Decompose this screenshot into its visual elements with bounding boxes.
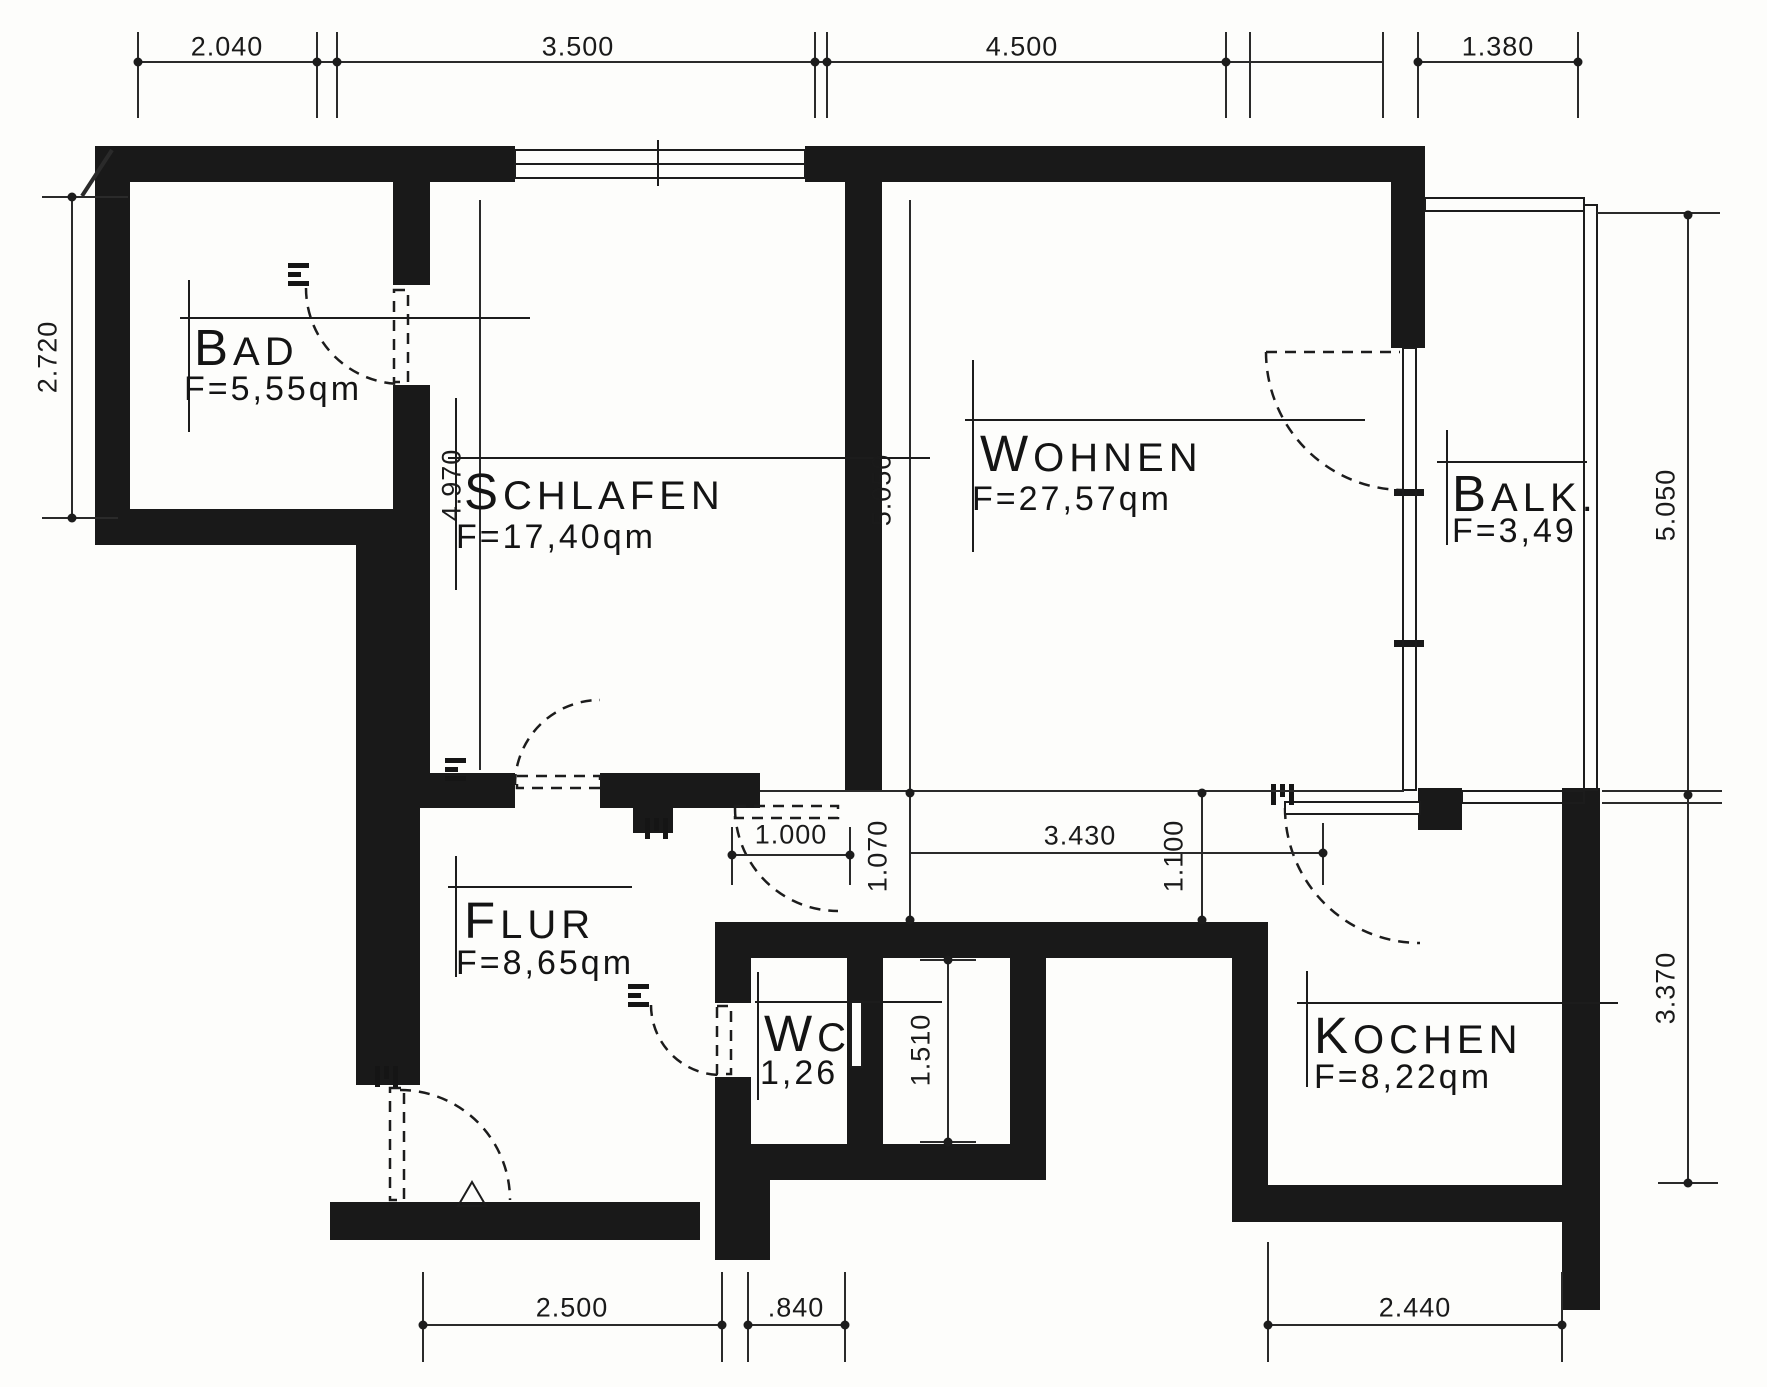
wall-bad-bottom: [95, 509, 395, 545]
wall-schlafen-bottom-left: [420, 773, 515, 808]
room-label-wc-area: 1,26: [760, 1056, 838, 1090]
wall-wc-bottom: [715, 1144, 1046, 1180]
dim-schlafen-height: 4.970: [439, 449, 466, 522]
dim-corridor-left: 1.070: [865, 820, 892, 893]
room-label-kochen-name: KOCHEN: [1314, 1010, 1522, 1061]
room-label-flur-name: FLUR: [464, 895, 595, 946]
flur-door-jamb-icon: [645, 818, 668, 839]
wall-flur-left-thick: [356, 509, 430, 790]
wall-flur-left-lower: [356, 790, 420, 1085]
floorplan-drawing: [0, 0, 1767, 1387]
room-label-wohnen-name: WOHNEN: [980, 428, 1203, 479]
entrance-door-arc: [400, 1090, 510, 1200]
entrance-door-leaf: [390, 1088, 404, 1200]
walls-group: [95, 146, 1600, 1310]
room-label-kochen-area: F=8,22qm: [1314, 1060, 1492, 1094]
wall-balcony-column: [1391, 182, 1425, 348]
wall-shaft-right: [1010, 958, 1046, 1180]
wall-kochen-top-stub: [1418, 788, 1462, 830]
dim-right-2: 3.370: [1653, 952, 1680, 1025]
kochen-door-arc: [1285, 808, 1420, 943]
balcony-railing-top: [1425, 198, 1584, 211]
wall-below-wc: [715, 1180, 770, 1260]
kochen-door-jamb-icon: [1271, 784, 1294, 805]
schlafen-door-jamb-icon: [445, 758, 466, 781]
wall-left-outer: [95, 146, 130, 545]
dim-corridor-width: 3.430: [1044, 823, 1117, 850]
wall-bottom-entrance: [330, 1202, 700, 1240]
wall-top-left: [95, 146, 515, 182]
kochen-door-leaf: [1285, 802, 1420, 814]
room-label-schlafen-area: F=17,40qm: [456, 520, 656, 554]
wall-bad-divider-lower: [393, 385, 430, 509]
bad-door-leaf: [394, 290, 408, 382]
dim-top-2: 3.500: [542, 34, 615, 61]
floor-plan: BAD F=5,55qm SCHLAFEN F=17,40qm WOHNEN F…: [0, 0, 1767, 1387]
door-jamb-symbols-group: [288, 263, 1294, 1087]
schlafen-door-arc: [515, 700, 600, 785]
wall-kochen-left: [1232, 922, 1268, 1196]
room-label-balkon-area: F=3,49: [1452, 514, 1577, 548]
dim-shaft: 1.510: [908, 1014, 935, 1087]
dim-top-4: 1.380: [1462, 34, 1535, 61]
dim-bottom-2: .840: [768, 1295, 825, 1322]
wc-shaft: [851, 1001, 862, 1067]
dim-right-1: 5.050: [1653, 469, 1680, 542]
wall-corridor-south: [715, 922, 1268, 958]
dim-top-3: 4.500: [986, 34, 1059, 61]
room-label-flur-area: F=8,65qm: [456, 946, 634, 980]
room-label-schlafen-name: SCHLAFEN: [464, 466, 725, 517]
room-label-wc-name: WC: [764, 1008, 851, 1059]
wall-kochen-right: [1562, 788, 1600, 1310]
balcony-glazing: [1403, 348, 1416, 790]
wall-schlafen-bottom-right: [600, 773, 760, 808]
wc-door-arc: [651, 1005, 721, 1075]
wall-wc-left-upper: [715, 958, 751, 1003]
dim-top-1: 2.040: [191, 34, 264, 61]
dim-corridor-right: 1.100: [1161, 820, 1188, 893]
balcony-glazing-tick-2: [1394, 640, 1424, 647]
dim-bottom-3: 2.440: [1379, 1295, 1452, 1322]
room-label-wohnen-area: F=27,57qm: [972, 482, 1172, 516]
wall-bad-divider-upper: [393, 182, 430, 285]
wc-door-leaf: [717, 1006, 731, 1074]
bad-door-jamb-icon: [288, 263, 309, 286]
room-label-bad-area: F=5,55qm: [184, 372, 362, 406]
wc-door-jamb-icon: [628, 984, 649, 1007]
dim-flur-door: 1.000: [755, 822, 828, 849]
dim-wohnen-height: 5.050: [869, 454, 896, 527]
dim-bottom-1: 2.500: [536, 1295, 609, 1322]
wall-kochen-bottom: [1232, 1185, 1600, 1222]
schlafen-door-leaf: [517, 776, 600, 788]
dim-left-1: 2.720: [35, 321, 62, 394]
room-label-bad-name: BAD: [194, 322, 299, 373]
wall-top-right: [805, 146, 1425, 182]
